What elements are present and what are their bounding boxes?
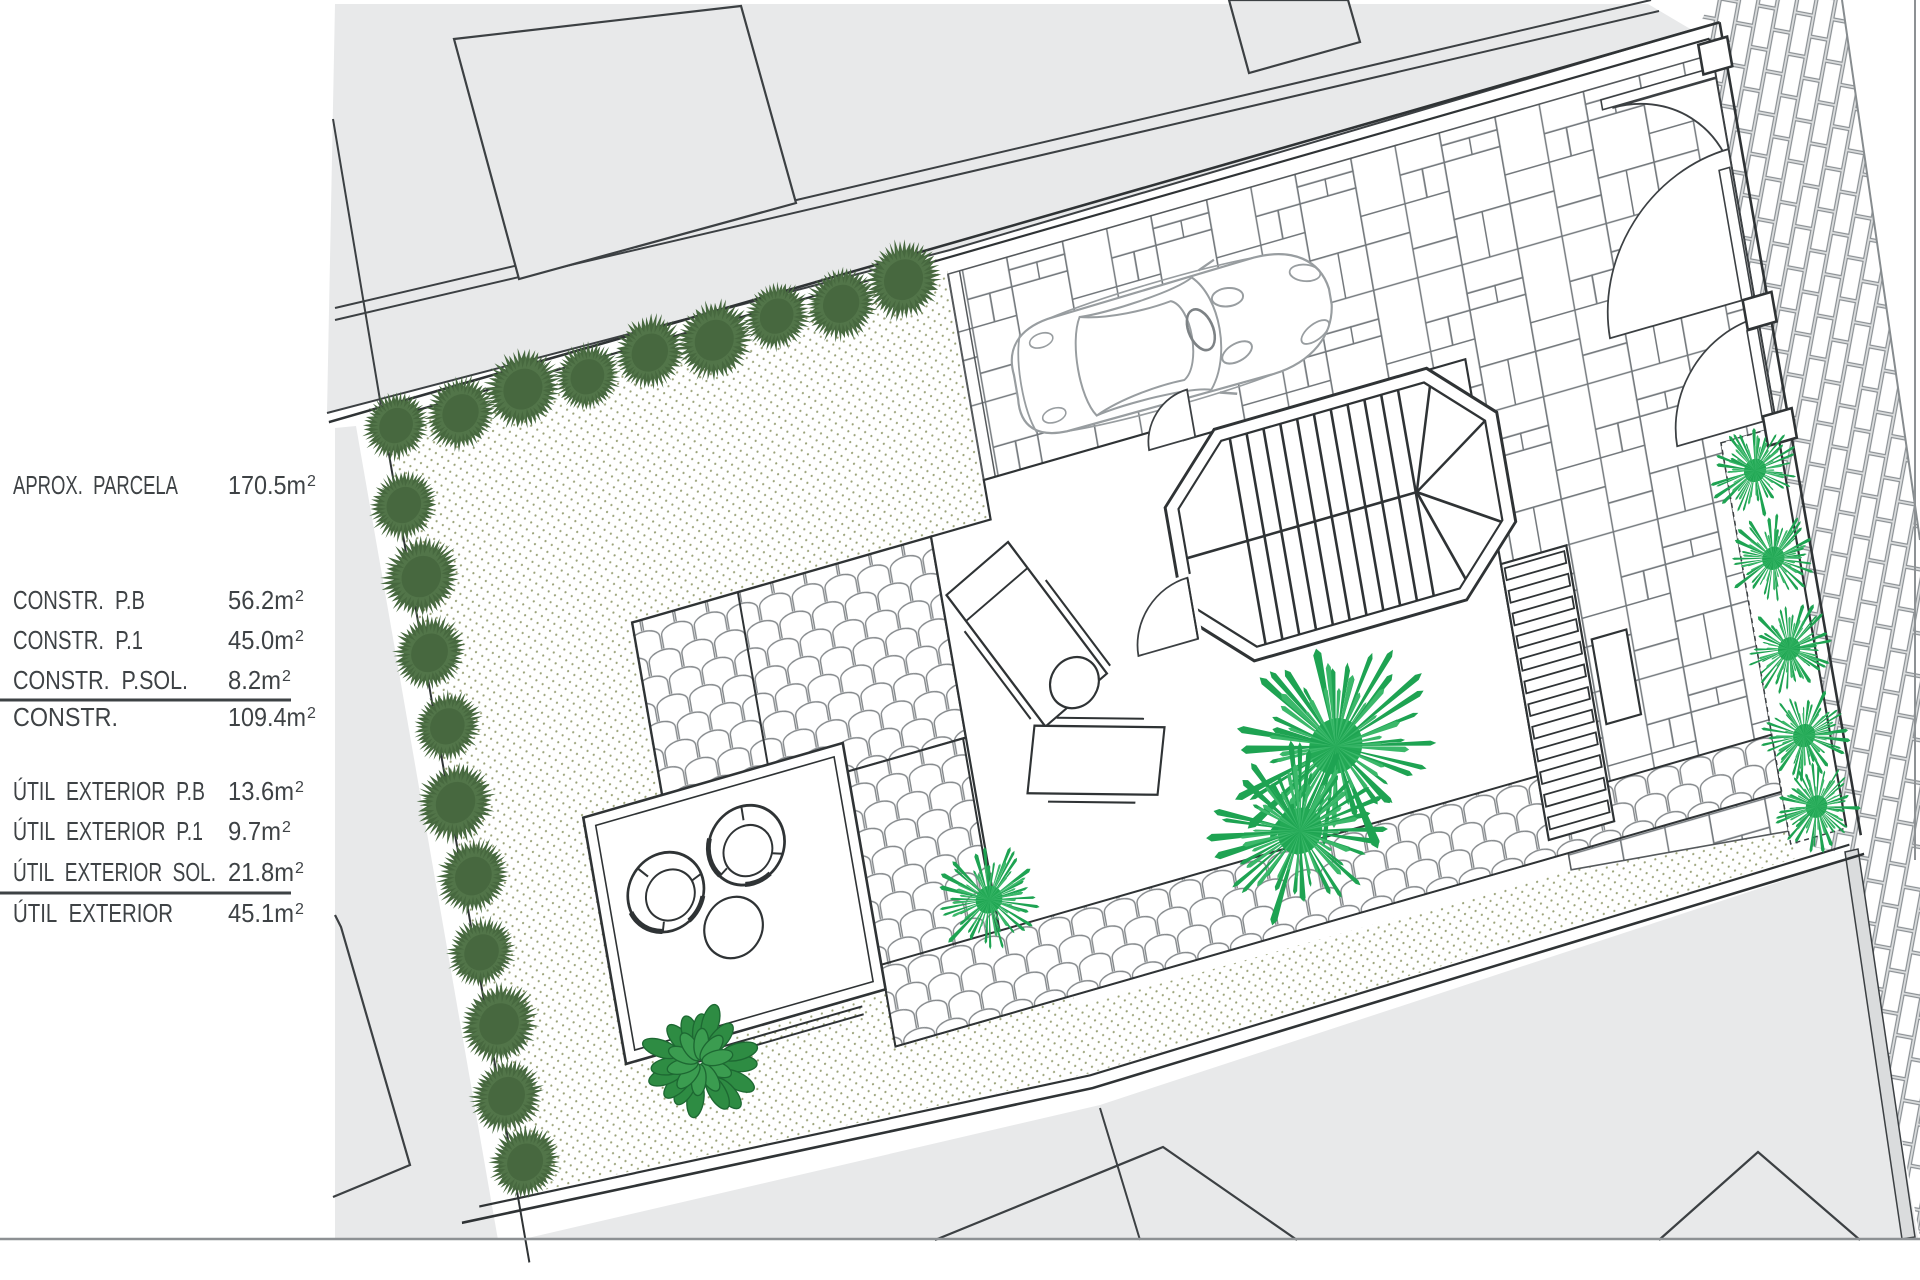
svg-text:APROX. PARCELA: APROX. PARCELA [13, 470, 178, 500]
svg-text:2: 2 [295, 860, 304, 877]
svg-text:CONSTR. P.SOL.: CONSTR. P.SOL. [13, 665, 188, 695]
svg-text:2: 2 [307, 473, 316, 490]
svg-text:2: 2 [295, 588, 304, 605]
svg-text:2: 2 [307, 705, 316, 722]
svg-text:9.7m: 9.7m [228, 816, 281, 846]
svg-text:8.2m: 8.2m [228, 665, 281, 695]
svg-text:45.0m: 45.0m [228, 625, 294, 655]
svg-text:2: 2 [282, 819, 291, 836]
svg-text:170.5m: 170.5m [228, 470, 306, 500]
svg-text:CONSTR.: CONSTR. [13, 702, 118, 732]
svg-text:2: 2 [295, 628, 304, 645]
svg-text:2: 2 [295, 901, 304, 918]
svg-text:ÚTIL EXTERIOR P.1: ÚTIL EXTERIOR P.1 [13, 816, 203, 846]
svg-text:109.4m: 109.4m [228, 702, 306, 732]
svg-text:CONSTR. P.B: CONSTR. P.B [13, 585, 145, 615]
svg-text:2: 2 [282, 668, 291, 685]
svg-text:ÚTIL EXTERIOR: ÚTIL EXTERIOR [13, 898, 173, 928]
svg-text:CONSTR. P.1: CONSTR. P.1 [13, 625, 143, 655]
svg-text:13.6m: 13.6m [228, 776, 294, 806]
svg-text:ÚTIL EXTERIOR SOL.: ÚTIL EXTERIOR SOL. [13, 857, 216, 887]
svg-text:45.1m: 45.1m [228, 898, 294, 928]
svg-text:2: 2 [295, 779, 304, 796]
svg-text:56.2m: 56.2m [228, 585, 294, 615]
svg-text:ÚTIL EXTERIOR P.B: ÚTIL EXTERIOR P.B [13, 776, 205, 806]
svg-text:21.8m: 21.8m [228, 857, 294, 887]
